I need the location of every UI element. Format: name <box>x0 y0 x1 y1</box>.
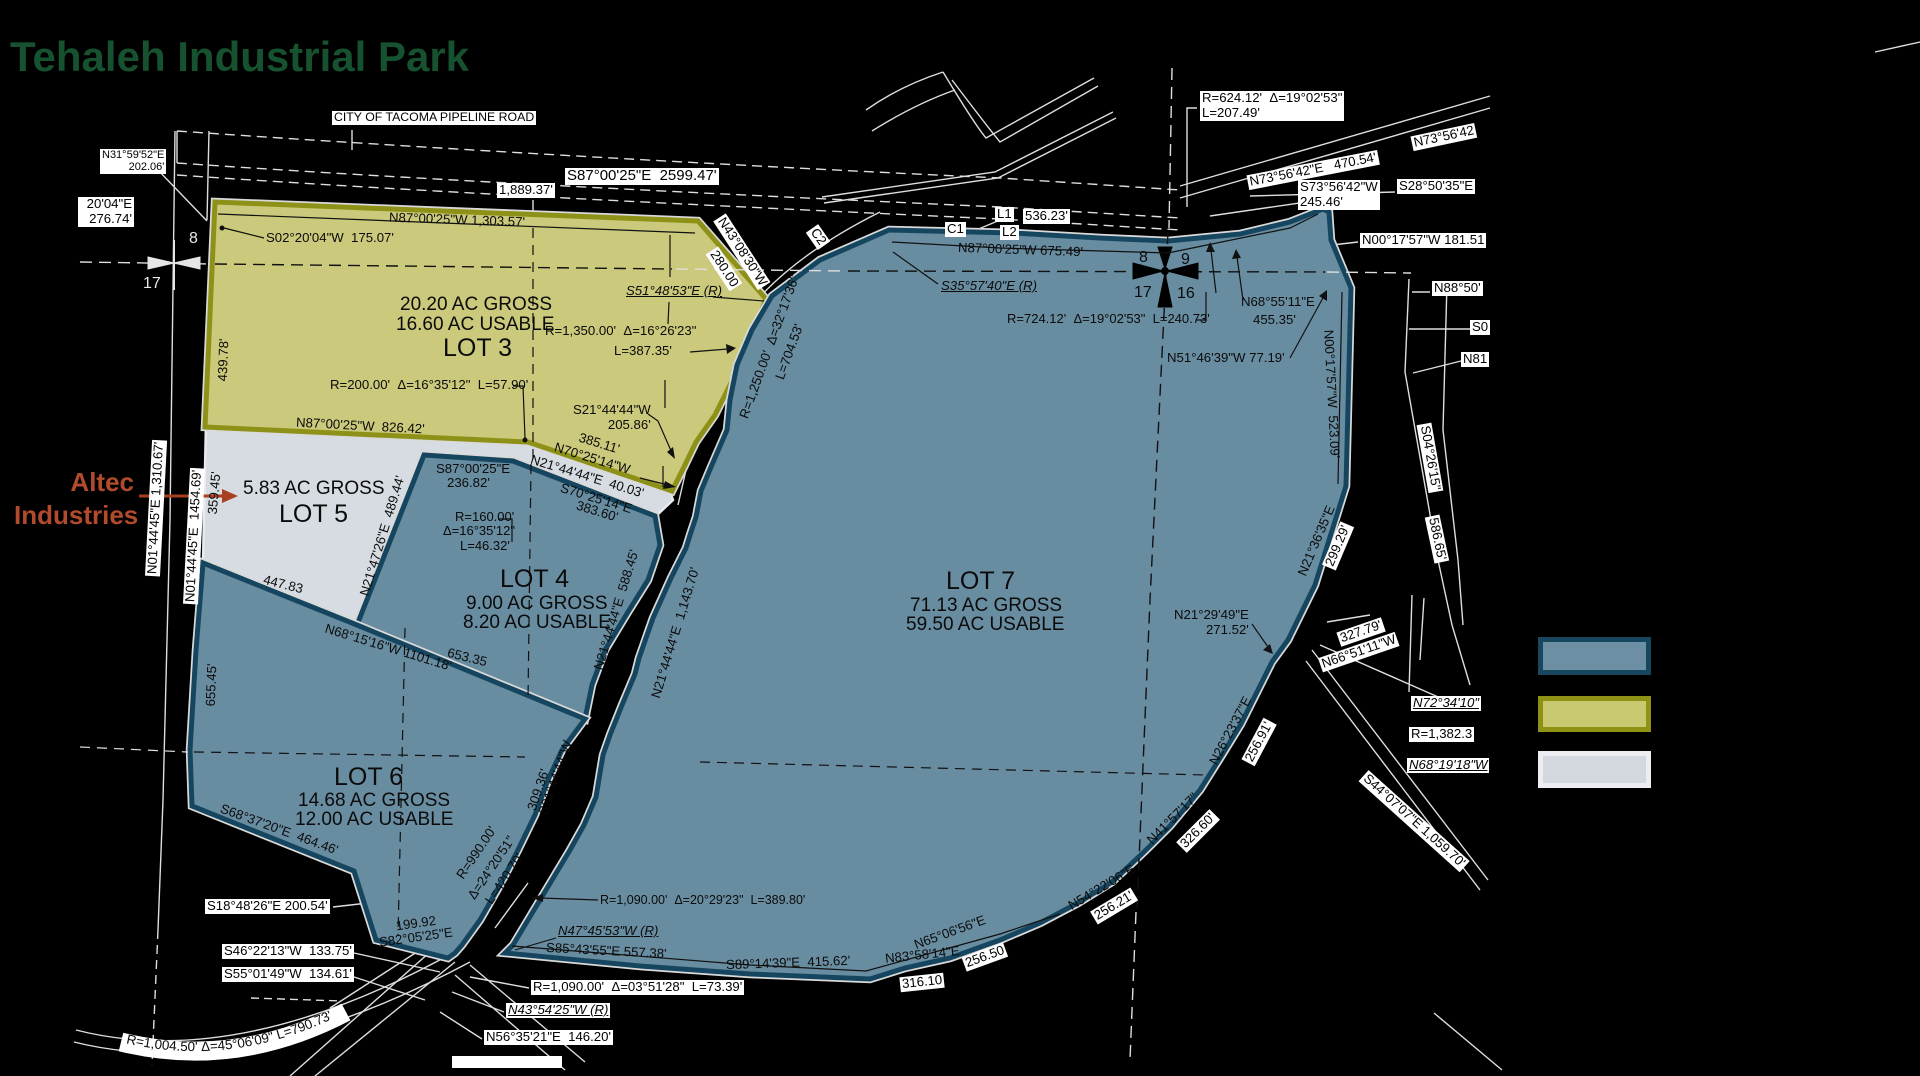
svg-text:R=1,004.50' Δ=45°06'09" L=79: R=1,004.50' Δ=45°06'09" L=790.73' <box>125 1008 334 1054</box>
